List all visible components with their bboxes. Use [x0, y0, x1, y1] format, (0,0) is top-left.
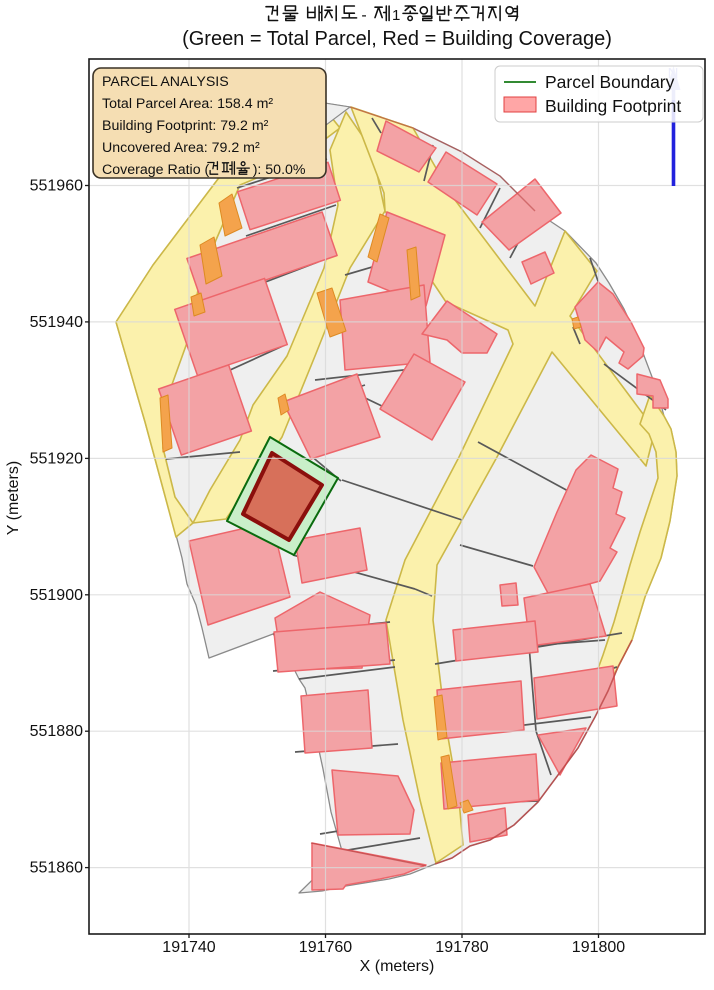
- svg-text:Building Footprint: Building Footprint: [545, 96, 681, 116]
- svg-text:191800: 191800: [572, 939, 625, 956]
- svg-text:Building Footprint: 79.2 m²: Building Footprint: 79.2 m²: [102, 118, 269, 134]
- svg-text:551960: 551960: [30, 178, 83, 195]
- svg-text:551880: 551880: [30, 723, 83, 740]
- svg-text:551940: 551940: [30, 314, 83, 331]
- svg-text:Parcel Boundary: Parcel Boundary: [545, 72, 675, 92]
- svg-text:Y (meters): Y (meters): [5, 461, 22, 535]
- svg-text:1: 1: [392, 7, 400, 24]
- svg-text:191760: 191760: [299, 939, 352, 956]
- svg-text:551860: 551860: [30, 860, 83, 877]
- svg-text:-: -: [361, 7, 366, 24]
- svg-text:Uncovered Area: 79.2 m²: Uncovered Area: 79.2 m²: [102, 140, 260, 156]
- svg-text:Coverage Ratio (: Coverage Ratio (: [102, 162, 210, 178]
- svg-text:551920: 551920: [30, 450, 83, 467]
- svg-text:X (meters): X (meters): [360, 958, 435, 975]
- svg-text:): 50.0%: ): 50.0%: [253, 162, 306, 178]
- svg-text:191740: 191740: [162, 939, 215, 956]
- svg-text:(Green = Total Parcel, Red = B: (Green = Total Parcel, Red = Building Co…: [182, 28, 612, 50]
- svg-text:191780: 191780: [435, 939, 488, 956]
- svg-text:Total Parcel Area: 158.4 m²: Total Parcel Area: 158.4 m²: [102, 96, 273, 112]
- svg-text:551900: 551900: [30, 587, 83, 604]
- svg-text:PARCEL ANALYSIS: PARCEL ANALYSIS: [102, 74, 229, 90]
